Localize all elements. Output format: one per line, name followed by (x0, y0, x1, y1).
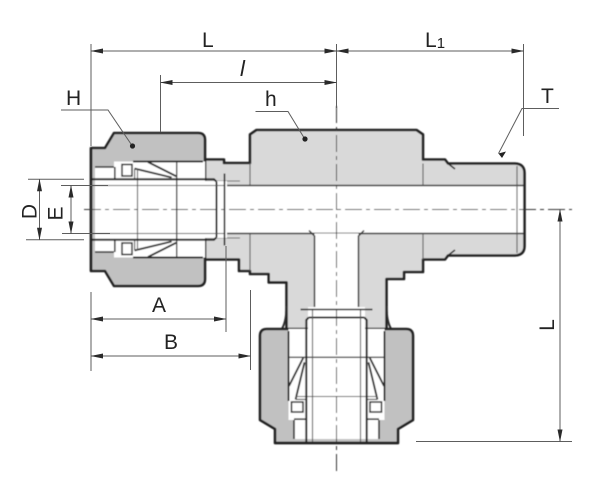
svg-text:E: E (45, 206, 68, 220)
svg-text:L: L (202, 29, 214, 52)
svg-text:B: B (164, 331, 178, 354)
svg-text:T: T (541, 85, 554, 108)
svg-text:h: h (265, 88, 277, 111)
svg-text:L: L (536, 319, 559, 331)
svg-text:A: A (152, 294, 166, 317)
svg-text:H: H (66, 87, 81, 110)
svg-text:D: D (19, 204, 42, 219)
